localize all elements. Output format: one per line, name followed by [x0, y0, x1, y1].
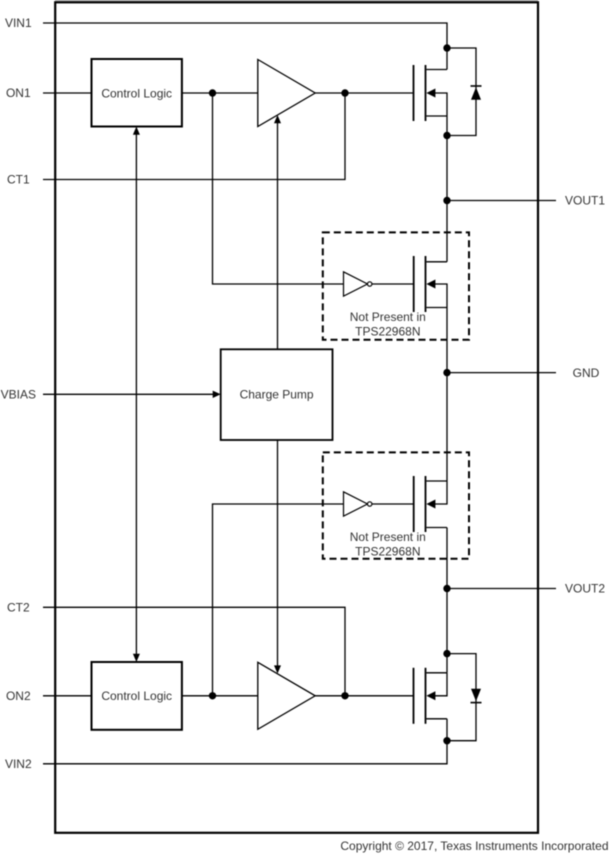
- svg-text:CT2: CT2: [7, 601, 30, 615]
- svg-text:ON1: ON1: [6, 86, 31, 100]
- svg-text:VBIAS: VBIAS: [1, 388, 36, 402]
- svg-text:VOUT2: VOUT2: [565, 582, 605, 596]
- svg-text:Copyright © 2017, Texas Instru: Copyright © 2017, Texas Instruments Inco…: [340, 839, 608, 853]
- svg-text:Not Present in: Not Present in: [350, 310, 426, 324]
- svg-text:TPS22968N: TPS22968N: [355, 545, 420, 559]
- svg-text:CT1: CT1: [7, 173, 30, 187]
- svg-text:Not Present in: Not Present in: [350, 530, 426, 544]
- svg-text:VIN1: VIN1: [5, 16, 32, 30]
- svg-text:GND: GND: [573, 366, 600, 380]
- svg-text:Charge Pump: Charge Pump: [240, 388, 314, 402]
- svg-text:VIN2: VIN2: [5, 757, 32, 771]
- svg-text:ON2: ON2: [6, 689, 31, 703]
- svg-text:TPS22968N: TPS22968N: [355, 325, 420, 339]
- svg-text:VOUT1: VOUT1: [565, 194, 605, 208]
- svg-text:Control Logic: Control Logic: [101, 689, 172, 703]
- svg-text:Control Logic: Control Logic: [101, 86, 172, 100]
